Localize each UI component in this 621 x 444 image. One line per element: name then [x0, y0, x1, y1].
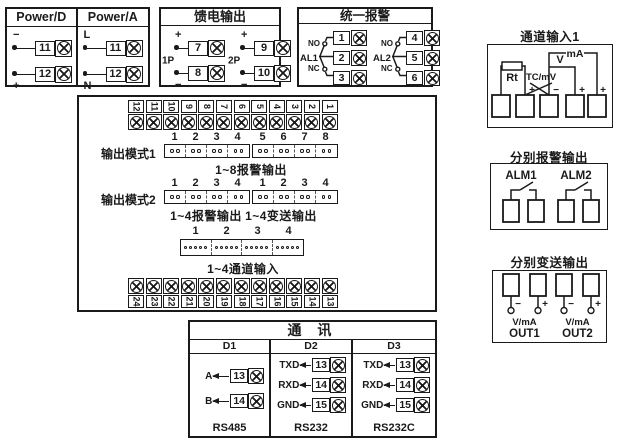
screw-terminal-icon	[330, 377, 346, 393]
screw-terminal-icon	[163, 114, 179, 130]
screw-terminal-icon	[414, 377, 430, 393]
screw-terminal-icon	[274, 65, 291, 82]
screw-terminal-icon	[304, 278, 320, 294]
strip-terminal: 20	[198, 278, 214, 308]
separate-transmit-diagram: − + − + V/mA V/mA OUT1 OUT2	[493, 271, 604, 340]
terminal-number: 7	[188, 41, 208, 56]
wire-lead	[13, 74, 35, 75]
separate-alarm-diagram: ALM1 ALM2	[491, 164, 605, 227]
relay-al1: AL1 NO NC 1 2	[300, 25, 367, 86]
group-label: 1P	[162, 55, 174, 66]
svg-text:NC: NC	[381, 64, 393, 73]
feed-group-2p: 2P + 9 − 10	[241, 40, 291, 81]
arrow-left-icon	[384, 365, 395, 366]
wire-lead	[175, 73, 188, 74]
terminal-number: 13	[230, 369, 248, 383]
strip-terminal: 4	[269, 100, 285, 130]
relay-al2: AL2 NO NC 4 5	[373, 25, 440, 86]
screw-terminal-icon	[248, 368, 264, 384]
screw-terminal-icon	[286, 278, 302, 294]
screw-terminal-icon	[414, 397, 430, 413]
screw-terminal-icon	[304, 114, 320, 130]
screw-terminal-icon	[208, 65, 225, 82]
strip-terminal: 12	[128, 100, 144, 130]
comm-d2-header: D2	[271, 340, 351, 354]
comm-row-gnd: GND 15	[353, 397, 435, 413]
screw-terminal-icon	[216, 278, 232, 294]
svg-text:NO: NO	[308, 39, 320, 48]
output-mode2-label: 输出模式2	[101, 191, 156, 208]
wire-lead	[13, 48, 35, 49]
relay-symbol: AL1 NO NC	[300, 25, 333, 85]
channel-jumper-caption: 1~4通道输入	[180, 260, 306, 277]
terminal-number: 9	[254, 41, 274, 56]
strip-terminal: 7	[216, 100, 232, 130]
strip-terminal: 18	[234, 278, 250, 308]
svg-text:NC: NC	[308, 64, 320, 73]
separate-transmit-title: 分别变送输出	[484, 252, 615, 271]
svg-text:+: +	[542, 299, 548, 310]
signal-label: RXD	[278, 380, 299, 391]
comm-d3-footer: RS232C	[353, 422, 435, 434]
svg-text:Rt: Rt	[506, 72, 518, 84]
svg-text:+: +	[595, 299, 601, 310]
screw-terminal-icon	[322, 278, 338, 294]
strip-terminal: 13	[322, 278, 338, 308]
screw-terminal-icon	[198, 114, 214, 130]
alarm-terminal-3: 3	[333, 70, 367, 86]
alarm-terminal-2: 2	[333, 50, 367, 66]
terminal-number: 5	[406, 51, 423, 65]
screw-terminal-icon	[286, 114, 302, 130]
svg-text:ALM2: ALM2	[560, 170, 591, 182]
screw-terminal-icon	[146, 278, 162, 294]
plus-sign: +	[175, 30, 181, 41]
screw-terminal-icon	[269, 278, 285, 294]
arrow-left-icon	[213, 376, 229, 377]
screw-terminal-icon	[322, 114, 338, 130]
comm-row-rxd: RXD 14	[271, 377, 351, 393]
terminal-number: 14	[396, 378, 414, 392]
line-sign: L	[84, 30, 91, 41]
group-label: 2P	[228, 55, 240, 66]
channel-input1-title: 通道输入1	[487, 26, 613, 45]
minus-sign: −	[175, 80, 181, 91]
screw-terminal-icon	[424, 70, 440, 86]
bottom-terminal-strip: 24 23 22 21 20 19 18 17 16 15 14 13	[128, 278, 338, 308]
svg-text:OUT1: OUT1	[509, 328, 540, 340]
feed-output-box: 馈电输出 1P + 7 − 8 2P	[159, 7, 281, 87]
strip-terminal: 8	[198, 100, 214, 130]
screw-terminal-icon	[424, 30, 440, 46]
terminal-number: 4	[406, 31, 423, 45]
strip-terminal: 6	[234, 100, 250, 130]
strip-terminal: 10	[163, 100, 179, 130]
screw-terminal-icon	[274, 40, 291, 57]
svg-text:V/mA: V/mA	[565, 317, 589, 328]
strip-terminal: 11	[146, 100, 162, 130]
wire-lead	[175, 48, 188, 49]
terminal-number: 13	[396, 358, 414, 372]
terminal-number: 10	[254, 66, 274, 81]
power-a-terminal-12: N 12	[84, 66, 149, 82]
signal-label: RXD	[362, 380, 383, 391]
svg-text:+: +	[579, 85, 585, 96]
alarm-terminal-5: 5	[406, 50, 440, 66]
screw-terminal-icon	[163, 278, 179, 294]
wire-lead	[241, 73, 254, 74]
screw-terminal-icon	[414, 357, 430, 373]
screw-terminal-icon	[55, 40, 72, 57]
svg-text:V: V	[556, 54, 564, 66]
strip-terminal: 14	[304, 278, 320, 308]
feed-output-title: 馈电输出	[161, 9, 279, 26]
neutral-sign: N	[84, 81, 92, 92]
svg-text:V/mA: V/mA	[512, 317, 536, 328]
dip-block-mode2-b: 1234	[252, 177, 338, 204]
svg-text:mA: mA	[567, 48, 584, 60]
svg-text:−: −	[553, 85, 559, 96]
terminal-number: 6	[406, 71, 423, 85]
screw-terminal-icon	[181, 278, 197, 294]
screw-terminal-icon	[126, 40, 143, 57]
arrow-left-icon	[300, 385, 311, 386]
screw-terminal-icon	[351, 70, 367, 86]
screw-terminal-icon	[424, 50, 440, 66]
screw-terminal-icon	[128, 114, 144, 130]
signal-label: TXD	[363, 360, 383, 371]
screw-terminal-icon	[198, 278, 214, 294]
power-d-title: Power/D	[7, 9, 76, 27]
screw-terminal-icon	[208, 40, 225, 57]
terminal-number: 11	[106, 41, 126, 56]
terminal-number: 15	[396, 398, 414, 412]
wire-lead	[84, 48, 106, 49]
separate-alarm-box: ALM1 ALM2	[490, 163, 608, 230]
screw-terminal-icon	[330, 357, 346, 373]
screw-terminal-icon	[216, 114, 232, 130]
comm-col-d3: D3 TXD 13 RXD 14	[353, 340, 435, 436]
power-d-terminal-12: + 12	[13, 66, 76, 82]
power-a-section: Power/A L 11 N 12	[78, 9, 149, 85]
mode1-caption: 1~8报警输出	[164, 161, 338, 178]
alarm-terminal-1: 1	[333, 30, 367, 46]
comm-col-d2: D2 TXD 13 RXD 14	[271, 340, 353, 436]
screw-terminal-icon	[146, 114, 162, 130]
arrow-left-icon	[384, 405, 395, 406]
minus-sign: −	[241, 80, 247, 91]
terminal-number: 13	[312, 358, 330, 372]
mode2-caption-right: 1~4变送输出	[237, 207, 325, 224]
strip-terminal: 17	[251, 278, 267, 308]
terminal-number: 12	[35, 67, 55, 82]
wire-lead	[241, 48, 254, 49]
arrow-left-icon	[300, 365, 311, 366]
channel-input1-diagram: mA V Rt TC/mV + − + +	[488, 45, 610, 125]
screw-terminal-icon	[351, 50, 367, 66]
channel-jumper-block: 1234	[180, 225, 304, 256]
terminal-number: 14	[312, 378, 330, 392]
comm-d2-footer: RS232	[271, 422, 351, 434]
comm-d3-header: D3	[353, 340, 435, 354]
arrow-left-icon	[300, 405, 311, 406]
signal-label: B	[205, 396, 212, 407]
dip-block-mode2-a: 1234	[164, 177, 250, 204]
screw-terminal-icon	[55, 66, 72, 83]
comm-row-rxd: RXD 14	[353, 377, 435, 393]
wiring-diagram: Power/D − 11 + 12 Power/A	[0, 0, 621, 444]
comm-d1-header: D1	[190, 340, 269, 354]
strip-terminal: 16	[269, 278, 285, 308]
screw-terminal-icon	[251, 114, 267, 130]
unified-alarm-title: 统一报警	[299, 9, 431, 24]
svg-text:−: −	[568, 299, 574, 310]
signal-label: TXD	[279, 360, 299, 371]
terminal-number: 8	[188, 66, 208, 81]
svg-text:+: +	[600, 85, 606, 96]
power-a-title: Power/A	[78, 9, 149, 27]
svg-text:AL2: AL2	[373, 53, 391, 64]
feed-terminal-10: − 10	[241, 65, 291, 81]
comm-row-a: A 13	[190, 368, 269, 384]
terminal-number: 11	[35, 41, 55, 56]
strip-terminal: 22	[163, 278, 179, 308]
comm-row-b: B 14	[190, 393, 269, 409]
strip-terminal: 23	[146, 278, 162, 308]
terminal-number: 3	[333, 71, 350, 85]
feed-terminal-9: + 9	[241, 40, 291, 56]
top-terminal-strip: 12 11 10 9 8 7 6 5 4 3 2 1	[128, 100, 338, 130]
strip-terminal: 5	[251, 100, 267, 130]
dip-block-mode1-b: 5678	[252, 131, 338, 158]
screw-terminal-icon	[269, 114, 285, 130]
strip-terminal: 15	[286, 278, 302, 308]
arrow-left-icon	[384, 385, 395, 386]
screw-terminal-icon	[234, 114, 250, 130]
alarm-terminal-6: 6	[406, 70, 440, 86]
strip-terminal: 9	[181, 100, 197, 130]
relay-symbol: AL2 NO NC	[373, 25, 406, 85]
output-mode1-label: 输出模式1	[101, 145, 156, 162]
screw-terminal-icon	[251, 278, 267, 294]
screw-terminal-icon	[248, 393, 264, 409]
alarm-terminal-4: 4	[406, 30, 440, 46]
feed-terminal-8: − 8	[175, 65, 225, 81]
comm-row-gnd: GND 15	[271, 397, 351, 413]
screw-terminal-icon	[330, 397, 346, 413]
strip-terminal: 3	[286, 100, 302, 130]
svg-text:ALM1: ALM1	[505, 170, 537, 182]
strip-terminal: 21	[181, 278, 197, 308]
arrow-left-icon	[213, 401, 229, 402]
feed-terminal-7: + 7	[175, 40, 225, 56]
screw-terminal-icon	[181, 114, 197, 130]
terminal-number: 15	[312, 398, 330, 412]
screw-terminal-icon	[128, 278, 144, 294]
comm-box: 通 讯 D1 A 13 B 14	[188, 320, 437, 438]
power-d-terminal-11: − 11	[13, 40, 76, 56]
comm-d1-footer: RS485	[190, 422, 269, 434]
main-unit-box: 12 11 10 9 8 7 6 5 4 3 2 1 输出模式1 1234 56…	[77, 95, 437, 312]
feed-group-1p: 1P + 7 − 8	[175, 40, 225, 81]
wire-lead	[84, 74, 106, 75]
comm-row-txd: TXD 13	[353, 357, 435, 373]
screw-terminal-icon	[126, 66, 143, 83]
comm-col-d1: D1 A 13 B 14	[190, 340, 271, 436]
svg-text:−: −	[515, 299, 521, 310]
strip-terminal: 24	[128, 278, 144, 308]
screw-terminal-icon	[351, 30, 367, 46]
power-a-terminal-11: L 11	[84, 40, 149, 56]
signal-label: A	[205, 371, 212, 382]
separate-transmit-box: − + − + V/mA V/mA OUT1 OUT2	[492, 270, 607, 343]
power-d-section: Power/D − 11 + 12	[7, 9, 78, 85]
power-box: Power/D − 11 + 12 Power/A	[5, 7, 150, 87]
terminal-number: 14	[230, 394, 248, 408]
terminal-number: 1	[333, 31, 350, 45]
svg-text:OUT2: OUT2	[562, 328, 593, 340]
svg-text:AL1: AL1	[300, 53, 319, 64]
plus-sign: +	[241, 30, 247, 41]
terminal-number: 12	[106, 67, 126, 82]
svg-text:NO: NO	[381, 39, 393, 48]
minus-sign: −	[13, 30, 19, 41]
strip-terminal: 19	[216, 278, 232, 308]
svg-text:+: +	[529, 85, 535, 96]
comm-row-txd: TXD 13	[271, 357, 351, 373]
plus-sign: +	[13, 81, 19, 92]
screw-terminal-icon	[234, 278, 250, 294]
signal-label: GND	[277, 400, 299, 411]
comm-title: 通 讯	[190, 322, 435, 340]
strip-terminal: 2	[304, 100, 320, 130]
strip-terminal: 1	[322, 100, 338, 130]
signal-label: GND	[361, 400, 383, 411]
svg-text:TC/mV: TC/mV	[526, 72, 557, 83]
terminal-number: 2	[333, 51, 350, 65]
unified-alarm-box: 统一报警 AL1 NO NC 1	[297, 7, 433, 87]
channel-input1-box: mA V Rt TC/mV + − + +	[487, 44, 613, 128]
dip-block-mode1-a: 1234	[164, 131, 250, 158]
